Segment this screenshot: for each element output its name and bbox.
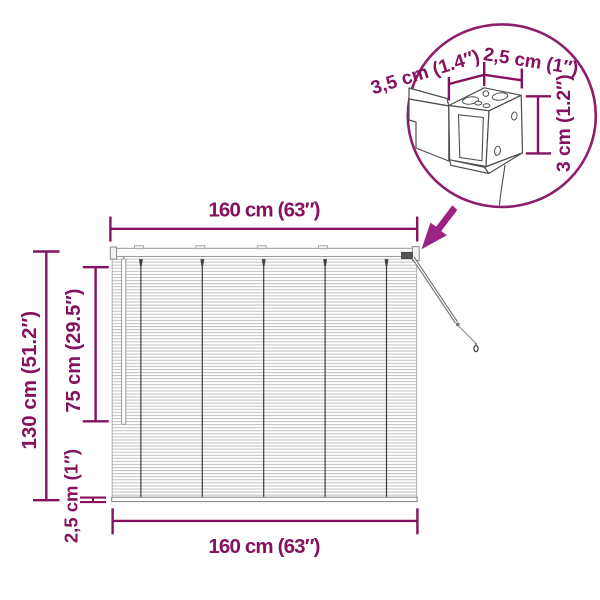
svg-text:3 cm (1.2″): 3 cm (1.2″) — [554, 74, 575, 172]
svg-text:160 cm (63″): 160 cm (63″) — [208, 535, 319, 558]
svg-text:2,5 cm (1″): 2,5 cm (1″) — [61, 449, 82, 543]
svg-text:160 cm (63″): 160 cm (63″) — [208, 199, 319, 222]
svg-text:130 cm (51.2″): 130 cm (51.2″) — [18, 311, 41, 450]
svg-text:75 cm (29.5″): 75 cm (29.5″) — [63, 289, 85, 413]
